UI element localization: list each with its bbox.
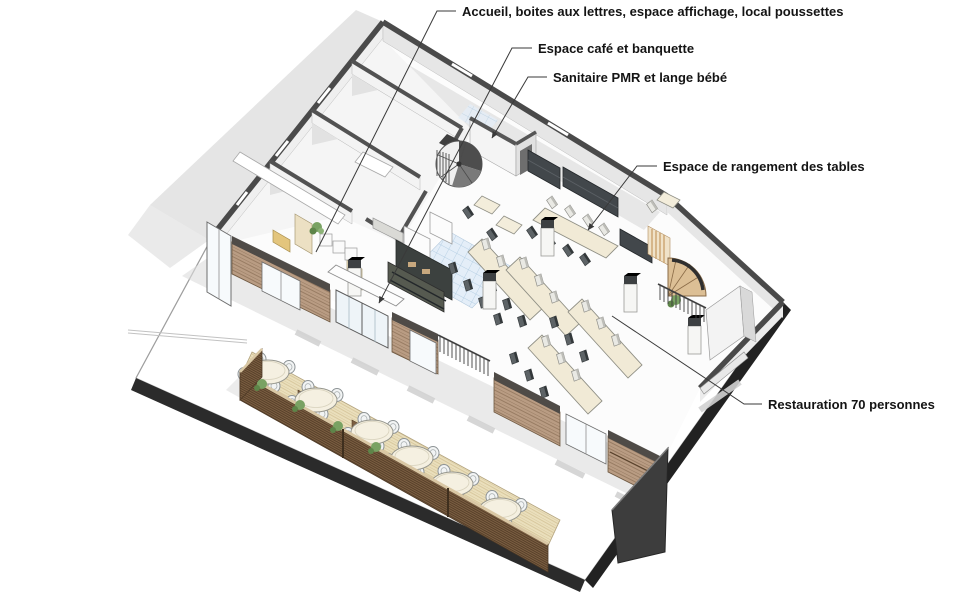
label-sanitaire: Sanitaire PMR et lange bébé: [553, 70, 727, 85]
label-espace-cafe: Espace café et banquette: [538, 41, 694, 56]
floor-plan-drawing: Accueil, boites aux lettres, espace affi…: [0, 0, 966, 596]
label-rangement: Espace de rangement des tables: [663, 159, 865, 174]
label-restauration: Restauration 70 personnes: [768, 397, 935, 412]
label-accueil: Accueil, boites aux lettres, espace affi…: [462, 4, 843, 19]
canvas: Accueil, boites aux lettres, espace affi…: [0, 0, 966, 596]
